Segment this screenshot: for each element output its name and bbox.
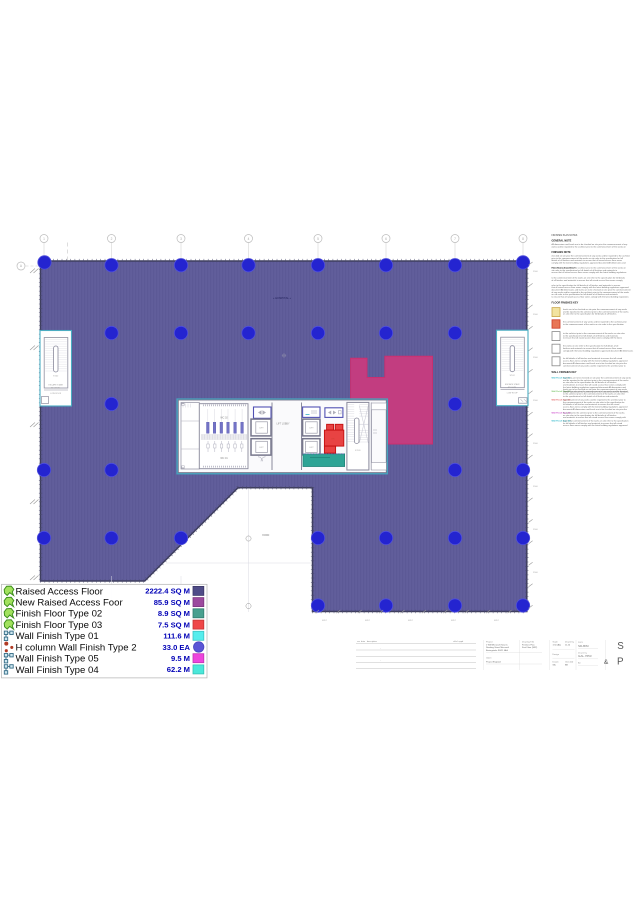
svg-text:ST.01: ST.01: [355, 450, 361, 452]
svg-text:Project: Project: [486, 641, 493, 644]
svg-text:to the specification for full: to the specification for full details of…: [563, 395, 618, 398]
svg-text:Basingstoke RG21 4AG: Basingstoke RG21 4AG: [486, 649, 508, 652]
svg-text:Raised Access Floor: Raised Access Floor: [16, 586, 104, 597]
svg-text:FINISHES NOTE: FINISHES NOTE: [552, 251, 572, 254]
svg-text:5: 5: [317, 237, 319, 241]
svg-text:85.9 SQ M: 85.9 SQ M: [154, 598, 190, 607]
svg-text:3500: 3500: [533, 572, 539, 574]
svg-text:Finish Floor Type 02: Finish Floor Type 02: [16, 609, 103, 620]
svg-text:Finish Floor Type 03: Finish Floor Type 03: [16, 620, 103, 631]
svg-text:11.20: 11.20: [565, 645, 571, 647]
svg-text:3500: 3500: [533, 271, 539, 273]
svg-text:ensure that all raised access: ensure that all raised access floor zone…: [552, 271, 627, 274]
svg-text:SD-BIM: SD-BIM: [578, 644, 589, 648]
svg-text:Wall Finish Type 01: Wall Finish Type 01: [16, 631, 99, 642]
svg-text:4: 4: [248, 237, 250, 241]
svg-text:1 WM Microsoft Towers: 1 WM Microsoft Towers: [486, 644, 508, 647]
svg-text:62.2 M: 62.2 M: [167, 665, 190, 674]
svg-text:3500: 3500: [533, 357, 539, 359]
svg-text:Project England: Project England: [486, 660, 502, 663]
svg-text:on site refer to the specifica: on site refer to the specification for f…: [563, 313, 616, 316]
svg-text:6857: 6857: [322, 620, 328, 622]
svg-text:AT LEVEL: AT LEVEL: [51, 387, 61, 390]
svg-text:FINISHES PLAN NOTES: FINISHES PLAN NOTES: [552, 234, 578, 237]
svg-text:WC 02: WC 02: [220, 416, 228, 419]
svg-text:to ensure that all raised acce: to ensure that all raised access floor z…: [563, 337, 622, 340]
svg-text:LOW ROOF: LOW ROOF: [507, 393, 519, 395]
svg-text:3500: 3500: [533, 443, 539, 445]
svg-text:of all finishes and materials: of all finishes and materials to ensure …: [552, 279, 624, 282]
svg-text:1:50 (A1): 1:50 (A1): [553, 644, 562, 647]
svg-text:LIFT LOBBY: LIFT LOBBY: [277, 424, 290, 426]
svg-text:9.5 M: 9.5 M: [171, 654, 190, 663]
svg-text:Design: Design: [553, 654, 560, 656]
svg-text:ST.02: ST.02: [53, 376, 59, 378]
svg-text:works and be reported to the a: works and be reported to the architect p…: [552, 245, 626, 248]
svg-text:P: P: [617, 656, 624, 667]
svg-text:Checked: Checked: [565, 662, 574, 664]
svg-text:GENERAL NOTE: GENERAL NOTE: [552, 240, 572, 243]
svg-text:AT LEVEL: AT LEVEL: [508, 386, 518, 389]
svg-text:FLOOR FINISHES KEY: FLOOR FINISHES KEY: [552, 302, 579, 305]
svg-text:Wall Finish Type 04: Wall Finish Type 04: [16, 665, 100, 676]
svg-text:document All dimensions and le: document All dimensions and levels are t…: [563, 408, 628, 411]
svg-text:New Raised Access Foor: New Raised Access Foor: [16, 598, 124, 609]
svg-text:Drawn by: Drawn by: [565, 641, 575, 644]
svg-text:1: 1: [43, 237, 45, 241]
svg-text:2222.4 SQ M: 2222.4 SQ M: [145, 587, 190, 596]
svg-text:comply with the latest buildin: comply with the latest building regulati…: [552, 261, 626, 264]
svg-text:LOW ROOF: LOW ROOF: [50, 393, 62, 395]
svg-text:First Floor (WIP): First Floor (WIP): [522, 646, 538, 649]
svg-text:3500: 3500: [533, 314, 539, 316]
svg-text:8: 8: [522, 237, 524, 241]
svg-text:Scale: Scale: [553, 642, 559, 644]
svg-text:ESCAPE STAIR: ESCAPE STAIR: [505, 383, 520, 386]
svg-text:H column Wall Finish Type 2: H column Wall Finish Type 2: [16, 642, 137, 653]
svg-text:3: 3: [180, 237, 182, 241]
svg-text:33.0 EA: 33.0 EA: [163, 643, 191, 652]
svg-text:comply with the latest buildin: comply with the latest building regulati…: [563, 349, 633, 352]
svg-text:ESCAPE STAIR: ESCAPE STAIR: [48, 384, 63, 387]
svg-text:S: S: [617, 641, 624, 652]
svg-text:2: 2: [111, 237, 113, 241]
svg-text:Wall Finish Type 05: Wall Finish Type 05: [16, 654, 99, 665]
svg-text:7: 7: [454, 237, 456, 241]
svg-text:rev date description: rev date description: [357, 640, 378, 643]
svg-text:access floor zones comply with: access floor zones comply with the lates…: [563, 424, 627, 427]
svg-text:VOID: VOID: [262, 533, 270, 537]
svg-text:to ensure that all raised acce: to ensure that all raised access floor z…: [552, 296, 629, 299]
svg-text:and materials to ensure that a: and materials to ensure that all raised …: [563, 416, 626, 419]
svg-text:to the commencement of the wor: to the commencement of the works on site…: [563, 323, 624, 326]
svg-text:6857: 6857: [365, 620, 371, 622]
svg-text:commencement of any works and: commencement of any works and be reporte…: [563, 364, 626, 367]
svg-text:111.6 M: 111.6 M: [163, 632, 190, 641]
svg-text:6857: 6857: [494, 620, 500, 622]
svg-text:6: 6: [385, 237, 387, 241]
svg-text:WALL FINISHES KEY: WALL FINISHES KEY: [552, 371, 577, 374]
svg-text:Client: Client: [486, 657, 492, 660]
svg-text:Drawn: Drawn: [553, 661, 560, 664]
svg-text:3500: 3500: [533, 486, 539, 488]
svg-text:WC 01: WC 01: [220, 457, 228, 460]
svg-text:&: &: [604, 659, 609, 666]
svg-text:Reading Street Microsoft: Reading Street Microsoft: [486, 646, 509, 649]
svg-text:ST.02: ST.02: [510, 375, 516, 377]
svg-text:6857: 6857: [408, 620, 414, 622]
svg-text:7.5 SQ M: 7.5 SQ M: [158, 620, 190, 629]
svg-text:3500: 3500: [533, 400, 539, 402]
svg-text:Drawing Title: Drawing Title: [522, 641, 535, 644]
svg-text:8.9 SQ M: 8.9 SQ M: [158, 609, 190, 618]
svg-text:chkd appd: chkd appd: [453, 641, 464, 643]
svg-text:6857: 6857: [451, 620, 457, 622]
svg-text:+ HOSPITAL +: + HOSPITAL +: [273, 296, 292, 300]
svg-text:3500: 3500: [533, 529, 539, 531]
svg-text:GAL.7653: GAL.7653: [578, 654, 592, 658]
